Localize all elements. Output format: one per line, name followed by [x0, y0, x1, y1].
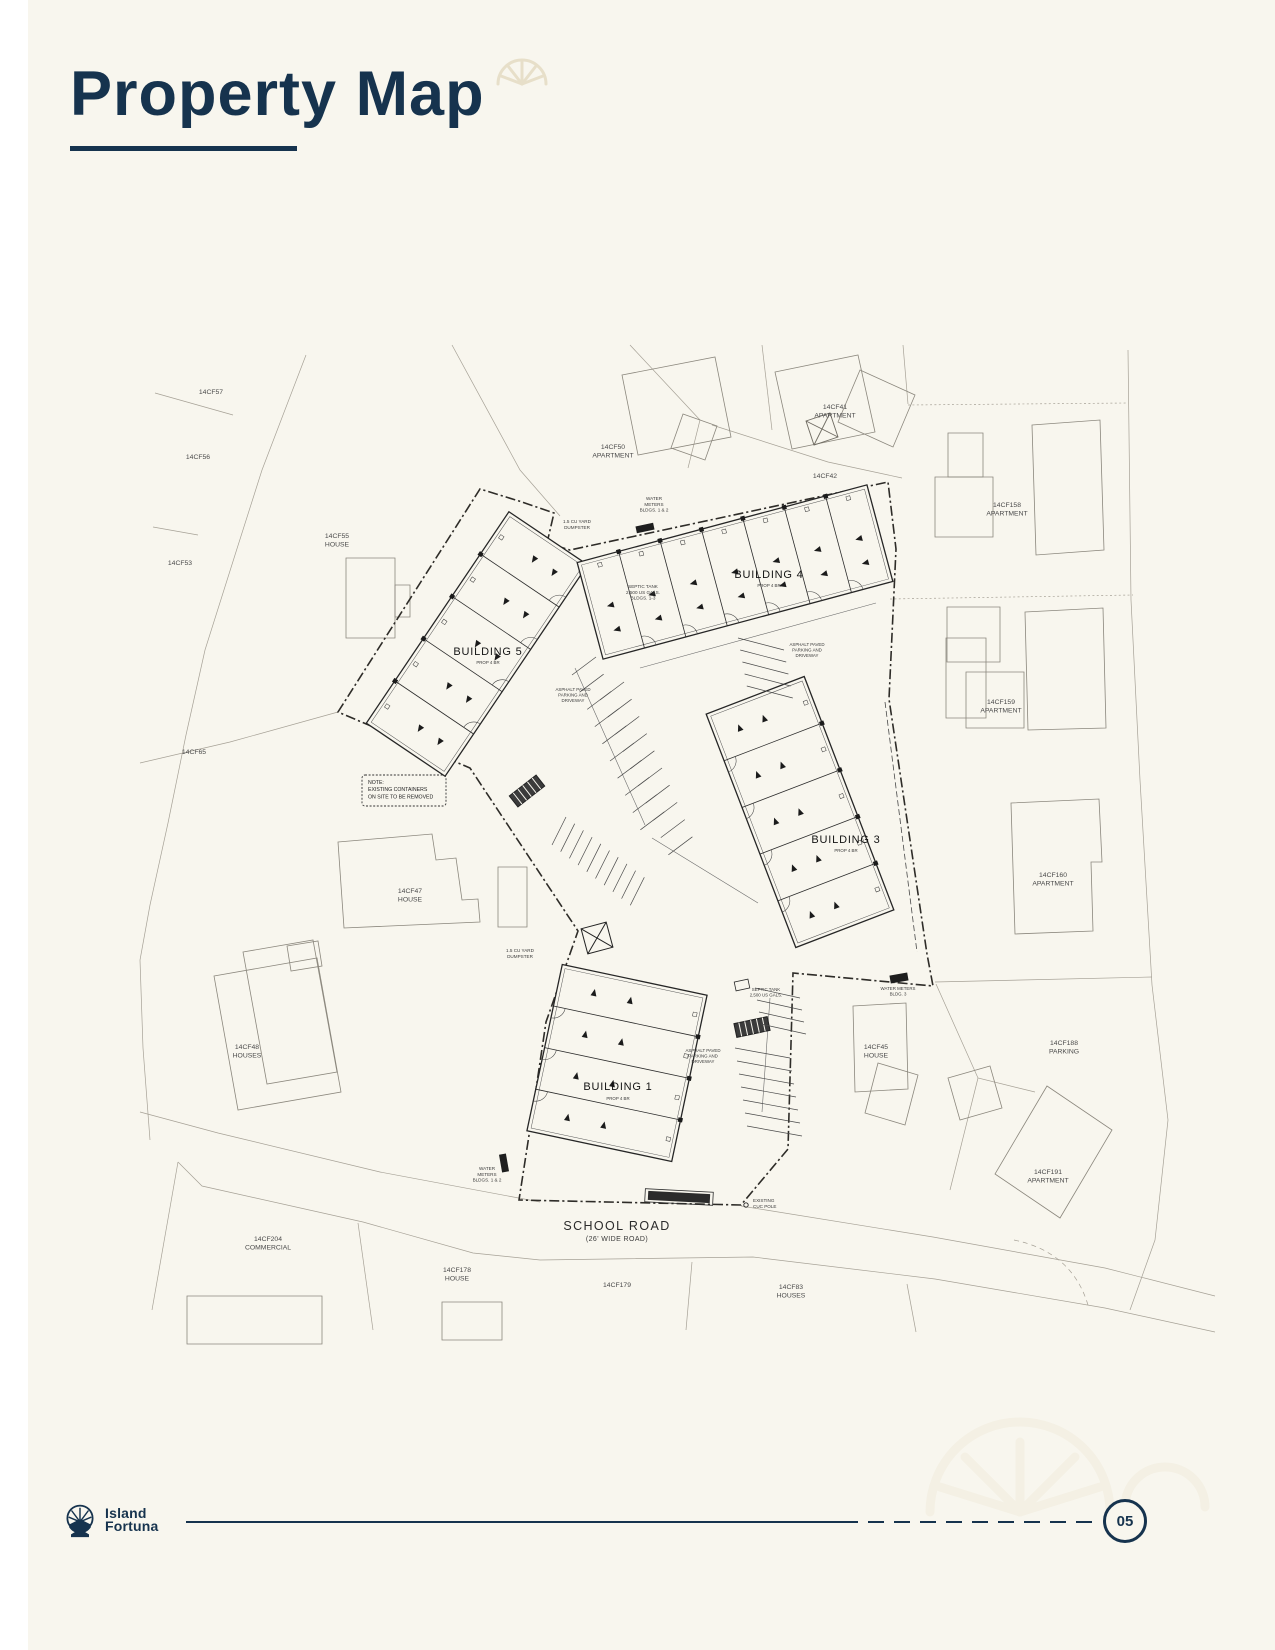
island-fortuna-sun-icon — [62, 1500, 98, 1540]
parcel-label-14cf83: 14CF83HOUSES — [777, 1284, 806, 1300]
building-sub-4: PROP 4 BR — [757, 583, 780, 588]
brand-name-line2: Fortuna — [105, 1520, 159, 1533]
parcel-label-14cf188: 14CF188PARKING — [1049, 1040, 1079, 1056]
annotation-water-meters-bottom: WATERMETERSBLDGS. 1 & 2 — [473, 1166, 502, 1183]
road-name: SCHOOL ROAD — [563, 1219, 670, 1233]
water-meter-bar-bldg3 — [889, 972, 908, 983]
building-sub-5: PROP 4 BR — [476, 660, 499, 665]
annotation-water-meters-bldg3: WATER METERSBLDG. 3 — [881, 986, 916, 997]
parcel-label-14cf41: 14CF41APARTMENT — [814, 404, 855, 420]
building-band-4 — [527, 964, 709, 1161]
building-label-1: BUILDING 1 — [583, 1081, 652, 1093]
parcel-label-14cf57: 14CF57 — [199, 389, 223, 396]
parcel-label-14cf65: 14CF65 — [182, 749, 206, 756]
water-meter-bar-north — [635, 523, 654, 534]
parcel-label-14cf47: 14CF47HOUSE — [398, 888, 423, 904]
parcel-label-14cf178: 14CF178HOUSE — [443, 1267, 471, 1283]
annotation-asphalt-west: ASPHALT PAVEDPARKING ANDDRIVEWAY — [555, 687, 590, 703]
parcel-label-14cf48: 14CF48HOUSES — [233, 1044, 262, 1060]
building-label-4: BUILDING 4 — [734, 569, 803, 581]
annotation-dumpster-mid: 1.5 CU YARDDUMPSTER — [506, 948, 535, 959]
parcel-label-14cf204: 14CF204COMMERCIAL — [245, 1236, 291, 1252]
parcel-label-14cf179: 14CF179 — [603, 1282, 631, 1289]
parcel-label-14cf159: 14CF159APARTMENT — [980, 699, 1021, 715]
page-number-badge: 05 — [1103, 1499, 1147, 1543]
annotation-asphalt-south: ASPHALT PAVEDPARKING ANDDRIVEWAY — [685, 1048, 720, 1064]
annotation-septic-tank-south: SEPTIC TANK2,500 US GALS. — [750, 987, 782, 998]
footer-rule-dashed — [842, 1521, 1102, 1524]
building-band-1 — [365, 511, 588, 777]
building-band-3 — [706, 676, 895, 948]
title-underline — [70, 146, 297, 151]
parcel-label-14cf53: 14CF53 — [168, 560, 192, 567]
parcel-label-14cf56: 14CF56 — [186, 454, 210, 461]
brand-logo: Island Fortuna — [62, 1500, 159, 1540]
parcel-label-14cf50: 14CF50APARTMENT — [592, 444, 633, 460]
parcel-label-14cf45: 14CF45HOUSE — [864, 1044, 889, 1060]
building-label-5: BUILDING 5 — [453, 646, 522, 658]
parcel-label-14cf191: 14CF191APARTMENT — [1027, 1169, 1068, 1185]
page-footer: Island Fortuna 05 — [0, 1492, 1275, 1562]
parcel-label-14cf158: 14CF158APARTMENT — [986, 502, 1027, 518]
brand-name: Island Fortuna — [105, 1507, 159, 1534]
footer-rule-solid — [186, 1521, 842, 1523]
annotation-water-meters-top: WATERMETERSBLDGS. 1 & 2 — [640, 496, 669, 513]
septic-tank-south — [734, 979, 750, 991]
page-number: 05 — [1117, 1513, 1134, 1530]
building-label-3: BUILDING 3 — [811, 834, 880, 846]
annotation-septic-tank-top: SEPTIC TANK2,500 US GALS.BLDGS. 1-3 — [626, 584, 660, 601]
crosswalk-hatch-west — [509, 775, 544, 807]
parcel-label-14cf42: 14CF42 — [813, 473, 837, 480]
water-meter-bar-south — [499, 1154, 509, 1173]
crosswalk-hatch-east — [734, 1017, 770, 1038]
parcel-label-14cf55: 14CF55HOUSE — [325, 533, 350, 549]
site-plan-drawing: 14CF5714CF5614CF55HOUSE14CF5314CF50APART… — [0, 0, 1275, 1650]
annotation-existing-cuc-pole: EXISTINGCUC POLE — [753, 1198, 777, 1209]
dumpster-enclosure-mid — [581, 922, 613, 954]
annotation-asphalt-east: ASPHALT PAVEDPARKING ANDDRIVEWAY — [789, 642, 824, 658]
building-sub-1: PROP 4 BR — [606, 1096, 629, 1101]
parcel-label-14cf160: 14CF160APARTMENT — [1032, 872, 1073, 888]
annotation-dumpster-top: 1.5 CU YARDDUMPSTER — [563, 519, 592, 530]
page-title: Property Map — [70, 58, 485, 130]
building-sub-3: PROP 4 BR — [834, 848, 857, 853]
road-subtitle: (26' WIDE ROAD) — [586, 1236, 648, 1243]
